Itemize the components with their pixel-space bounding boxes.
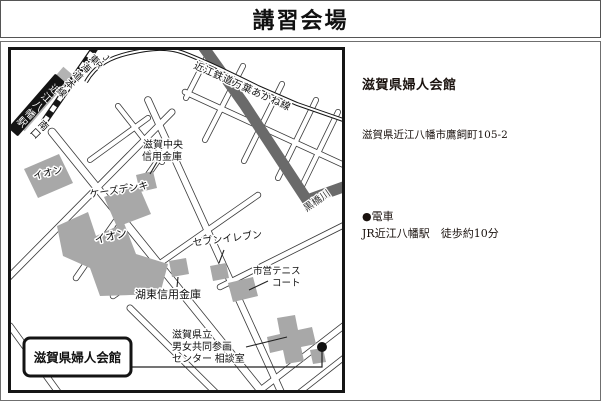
venue-address: 滋賀県近江八幡市鷹飼町105-2 bbox=[362, 127, 508, 142]
access-heading: ●電車 bbox=[362, 208, 394, 224]
map-svg: 近江八幡駅 南口 JR 東海道本線 近江鉄道万葉あかね線 黒橋川 イオン ケーズ… bbox=[11, 50, 342, 390]
building-koto-shinkin bbox=[169, 258, 189, 277]
flyer-page: 講習会場 滋賀県婦人会館 滋賀県近江八幡市鷹飼町105-2 ●電車 JR近江八幡… bbox=[0, 0, 601, 401]
label-chuo-shinkin-1: 滋賀中央 bbox=[143, 138, 183, 151]
page-title: 講習会場 bbox=[1, 1, 600, 37]
label-tennis-1: 市営テニス bbox=[253, 265, 301, 277]
label-center-1: 滋賀県立 bbox=[172, 328, 212, 341]
venue-name: 滋賀県婦人会館 bbox=[362, 74, 457, 93]
venue-callout-label: 滋賀県婦人会館 bbox=[34, 350, 122, 365]
label-koto-shinkin: 湖東信用金庫 bbox=[135, 287, 201, 301]
venue-marker-dot bbox=[317, 342, 327, 352]
label-tennis-2: コート bbox=[272, 278, 301, 289]
title-box: 講習会場 bbox=[0, 0, 601, 38]
map: 近江八幡駅 南口 JR 東海道本線 近江鉄道万葉あかね線 黒橋川 イオン ケーズ… bbox=[8, 47, 345, 393]
label-center-3: センター 相談室 bbox=[172, 352, 245, 365]
building-seven-eleven bbox=[210, 263, 229, 281]
access-detail: JR近江八幡駅 徒歩約10分 bbox=[362, 225, 499, 241]
label-center-2: 男女共同参画 bbox=[172, 340, 232, 353]
label-chuo-shinkin-2: 信用金庫 bbox=[142, 150, 182, 163]
